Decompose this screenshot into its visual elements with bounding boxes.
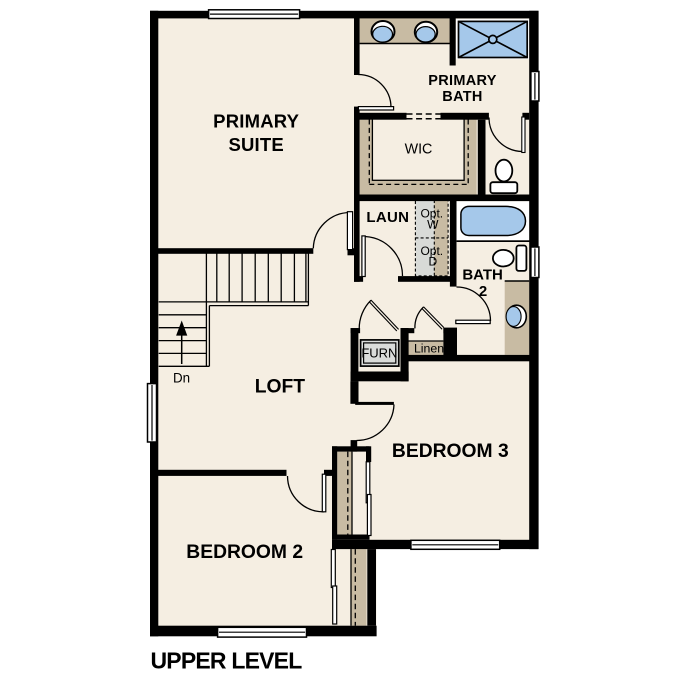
svg-text:PRIMARY: PRIMARY (213, 110, 299, 131)
svg-text:D: D (428, 255, 437, 269)
svg-text:BEDROOM 2: BEDROOM 2 (186, 542, 303, 563)
svg-text:LAUN: LAUN (366, 209, 409, 226)
svg-text:Dn: Dn (173, 371, 190, 386)
svg-text:BATH: BATH (462, 267, 503, 284)
svg-text:2: 2 (479, 283, 487, 300)
svg-text:UPPER LEVEL: UPPER LEVEL (151, 648, 303, 674)
svg-text:LOFT: LOFT (255, 377, 306, 398)
svg-text:SUITE: SUITE (228, 134, 283, 155)
svg-text:PRIMARY: PRIMARY (428, 73, 496, 89)
svg-text:BATH: BATH (442, 89, 482, 105)
svg-text:W: W (427, 218, 439, 232)
svg-text:BEDROOM 3: BEDROOM 3 (392, 441, 509, 462)
svg-text:WIC: WIC (405, 141, 433, 157)
svg-text:Linen: Linen (414, 342, 444, 356)
svg-text:FURN: FURN (361, 346, 397, 361)
